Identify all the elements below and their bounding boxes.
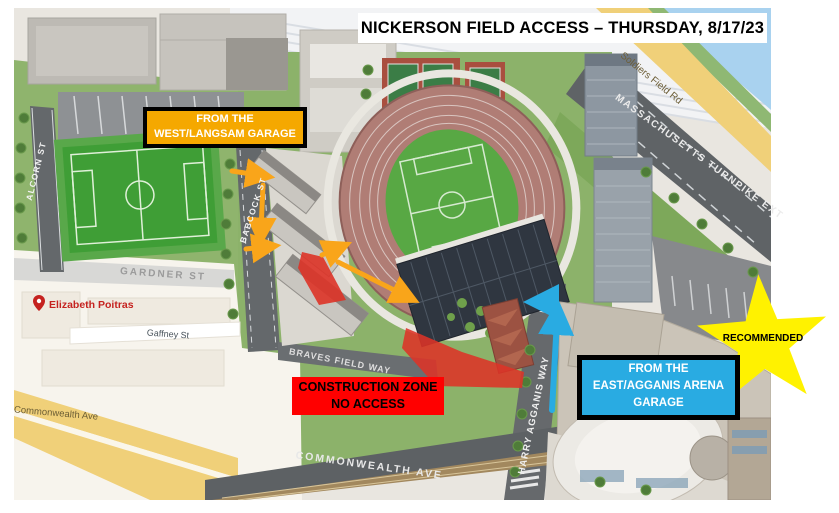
east-garage-line2: EAST/AGGANIS ARENA — [582, 378, 735, 395]
map-pin-icon — [33, 295, 45, 311]
west-garage-line1: FROM THE — [147, 112, 303, 127]
construction-zone-callout: CONSTRUCTION ZONE NO ACCESS — [292, 377, 444, 415]
map-title-banner: NICKERSON FIELD ACCESS – THURSDAY, 8/17/… — [358, 13, 767, 43]
campus-map-graphic — [0, 0, 839, 513]
west-garage-callout: FROM THE WEST/LANGSAM GARAGE — [143, 107, 307, 148]
west-soccer-field — [54, 128, 226, 261]
east-garage-line3: GARAGE — [582, 395, 735, 412]
poi-elizabeth-poitras: Elizabeth Poitras — [33, 295, 134, 311]
east-garage-callout: FROM THE EAST/AGGANIS ARENA GARAGE — [577, 355, 740, 420]
annotated-campus-map: ALCORN ST BABCOCK ST GARDNER ST Gaffney … — [0, 0, 839, 513]
construction-line1: CONSTRUCTION ZONE — [292, 379, 444, 396]
east-garage-line1: FROM THE — [582, 361, 735, 378]
poi-label: Elizabeth Poitras — [49, 299, 134, 311]
west-garage-line2: WEST/LANGSAM GARAGE — [147, 127, 303, 142]
map-area — [14, 8, 771, 513]
construction-line2: NO ACCESS — [292, 396, 444, 413]
